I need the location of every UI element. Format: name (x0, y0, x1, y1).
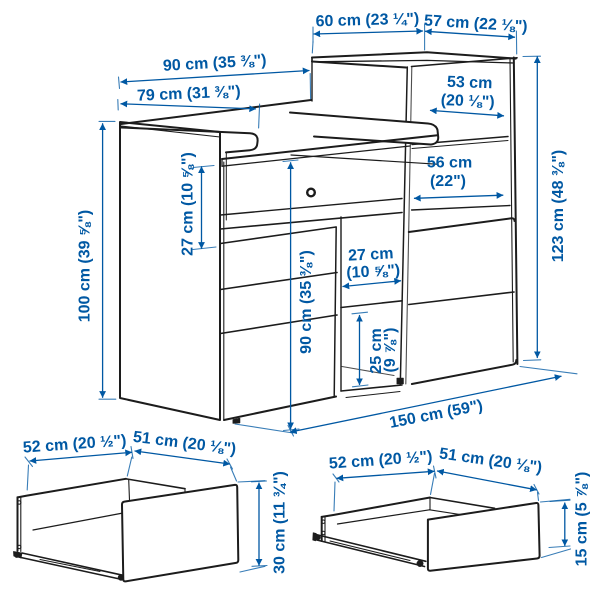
svg-text:27 cm: 27 cm (348, 245, 394, 264)
svg-text:60 cm (23 ¼"): 60 cm (23 ¼") (315, 11, 419, 31)
svg-text:100 cm (39 ⅝"): 100 cm (39 ⅝") (77, 210, 94, 323)
svg-text:(22"): (22") (430, 173, 466, 190)
svg-text:(10 ⅝"): (10 ⅝") (346, 262, 401, 282)
svg-text:56 cm: 56 cm (427, 155, 472, 172)
svg-text:30 cm (11 ¾"): 30 cm (11 ¾") (272, 471, 289, 574)
svg-text:53 cm: 53 cm (447, 74, 493, 93)
svg-text:(9 ⅞"): (9 ⅞") (382, 328, 399, 373)
svg-text:90 cm (35 ⅜"): 90 cm (35 ⅜") (298, 250, 315, 354)
svg-text:(20 ⅛"): (20 ⅛") (440, 92, 494, 111)
svg-text:27 cm (10 ⅝"): 27 cm (10 ⅝") (180, 152, 197, 256)
svg-text:15 cm (5 ⅞"): 15 cm (5 ⅞") (574, 472, 591, 567)
svg-text:123 cm (48 ⅜"): 123 cm (48 ⅜") (550, 150, 567, 263)
